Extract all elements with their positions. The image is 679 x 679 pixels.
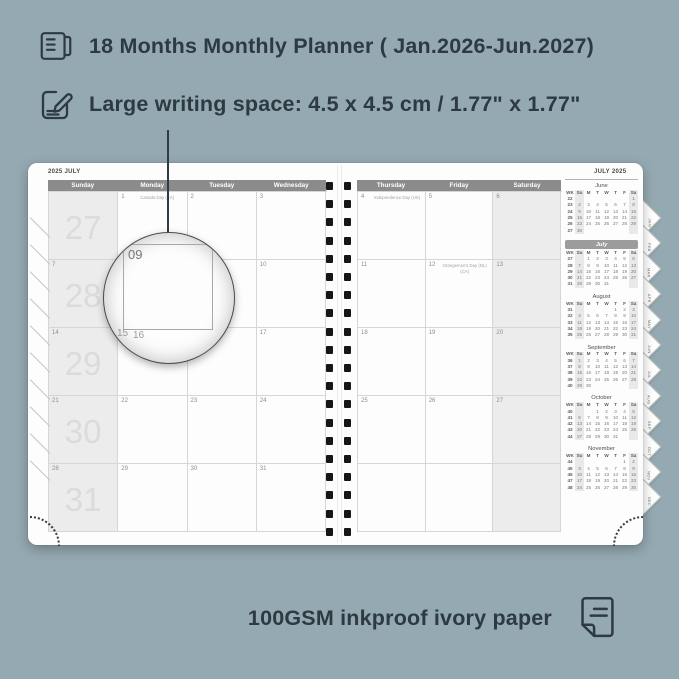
page-curl-right	[609, 512, 643, 546]
day-header: Friday	[425, 180, 493, 191]
day-cell: 20	[493, 328, 561, 396]
mini-calendar-title: September	[565, 345, 638, 351]
day-cell	[426, 464, 494, 532]
mini-calendar-title: August	[565, 294, 638, 300]
right-day-headers: ThursdayFridaySaturday	[357, 180, 561, 191]
binding-hole	[344, 200, 351, 208]
binding-hole	[326, 382, 333, 390]
binding-hole	[326, 182, 333, 190]
calendar-week-row: 4Independence Day (US)56	[358, 192, 562, 260]
mini-calendar-grid: WKSuMTWTFSa27123456287891011121329141516…	[565, 250, 638, 288]
binding-hole	[326, 309, 333, 317]
calendar-week-row: 2130222324	[49, 396, 327, 464]
magnified-day-cell: 09	[123, 244, 213, 330]
binding-hole	[344, 291, 351, 299]
subheadline-row: Large writing space: 4.5 x 4.5 cm / 1.77…	[36, 83, 580, 125]
spine-line	[341, 165, 342, 543]
day-cell: 18	[358, 328, 426, 396]
planner-spread: 2025 JULY JULY 2025 SundayMondayTuesdayW…	[28, 163, 643, 545]
calendar-week-row: 2831293031	[49, 464, 327, 532]
left-day-headers: SundayMondayTuesdayWednesday	[48, 180, 326, 191]
binding-hole	[344, 328, 351, 336]
binding-hole	[344, 182, 351, 190]
day-cell: 25	[358, 396, 426, 464]
right-page-title: JULY 2025	[594, 169, 626, 175]
magnified-next-date: 16	[133, 330, 144, 341]
binding-hole	[344, 419, 351, 427]
footer-text: 100GSM inkproof ivory paper	[248, 606, 552, 631]
mini-calendar-grid: WKSuMTWTFSa22123234567824910111213141525…	[565, 190, 638, 234]
binding-hole	[344, 437, 351, 445]
binding-hole	[344, 309, 351, 317]
binding-hole	[326, 346, 333, 354]
mini-calendar-grid: WKSuMTWTFSa44124534567894610111213141516…	[565, 453, 638, 491]
subheadline-text: Large writing space: 4.5 x 4.5 cm / 1.77…	[89, 92, 580, 117]
mini-calendar-grid: WKSuMTWTFSa40123454167891011124213141516…	[565, 402, 638, 440]
day-header: Monday	[118, 180, 188, 191]
footer-row: 100GSM inkproof ivory paper	[248, 590, 624, 646]
sunday-cell: 2130	[49, 396, 118, 464]
day-cell: 30	[188, 464, 257, 532]
binding-hole	[344, 237, 351, 245]
day-cell: 29	[118, 464, 187, 532]
mini-calendar-title: October	[565, 395, 638, 401]
binding-hole	[326, 473, 333, 481]
day-cell	[358, 464, 426, 532]
sunday-cell: 27	[49, 192, 118, 260]
binding-hole	[344, 346, 351, 354]
day-cell: 26	[426, 396, 494, 464]
day-cell: 4Independence Day (US)	[358, 192, 426, 260]
binding-hole	[344, 455, 351, 463]
binding-hole	[326, 200, 333, 208]
binding-hole	[344, 473, 351, 481]
product-graphic: 18 Months Monthly Planner ( Jan.2026-Jun…	[0, 0, 679, 679]
paper-icon	[570, 590, 624, 646]
mini-calendar-title: November	[565, 446, 638, 452]
binding-hole	[344, 364, 351, 372]
day-cell: 22	[118, 396, 187, 464]
headline-text: 18 Months Monthly Planner ( Jan.2026-Jun…	[89, 34, 594, 59]
mini-calendar-title: June	[565, 183, 638, 189]
binding-hole	[344, 218, 351, 226]
page-curl-left	[30, 512, 64, 546]
day-cell: 23	[188, 396, 257, 464]
binding-hole	[326, 273, 333, 281]
binding-hole	[326, 400, 333, 408]
calendar-week-row: 252627	[358, 396, 562, 464]
headline-row: 18 Months Monthly Planner ( Jan.2026-Jun…	[36, 27, 594, 65]
binding-hole	[326, 255, 333, 263]
binding-hole	[344, 528, 351, 536]
day-header: Thursday	[357, 180, 425, 191]
sidebar: JuneWKSuMTWTFSa2212323456782491011121314…	[565, 179, 638, 491]
day-header: Wednesday	[257, 180, 327, 191]
book-icon	[36, 27, 76, 65]
binding-hole	[344, 491, 351, 499]
mini-calendar-july: JulyWKSuMTWTFSa2712345628789101112132914…	[565, 239, 638, 288]
day-cell: 24	[257, 396, 326, 464]
calendar-week-row: 1112Orangemen's Day (NL) (CA)13	[358, 260, 562, 328]
day-cell: 10	[257, 260, 326, 328]
pencil-note-icon	[36, 83, 76, 125]
spine-line	[337, 165, 338, 543]
mini-calendar-november: NovemberWKSuMTWTFSa441245345678946101112…	[565, 445, 638, 491]
day-cell: 31	[257, 464, 326, 532]
binding-hole	[326, 364, 333, 372]
day-cell: 6	[493, 192, 561, 260]
day-cell: 3	[257, 192, 326, 260]
calendar-week-row: 181920	[358, 328, 562, 396]
binding-hole	[326, 419, 333, 427]
day-cell: 17	[257, 328, 326, 396]
binding-hole	[326, 291, 333, 299]
binding-hole	[326, 218, 333, 226]
binding-hole	[344, 273, 351, 281]
binding-hole	[326, 455, 333, 463]
day-cell: 11	[358, 260, 426, 328]
mini-calendar-grid: WKSuMTWTFSa36123456737891011121314381516…	[565, 352, 638, 390]
binding-hole	[344, 400, 351, 408]
sunday-cell: 1429	[49, 328, 118, 396]
binding-hole	[326, 237, 333, 245]
magnified-date: 09	[128, 247, 142, 262]
day-header: Saturday	[493, 180, 561, 191]
day-cell: 19	[426, 328, 494, 396]
callout-line	[167, 130, 169, 236]
mini-calendar-june: JuneWKSuMTWTFSa2212323456782491011121314…	[565, 182, 638, 234]
mini-calendar-title: July	[565, 240, 638, 249]
mini-calendar-grid: WKSuMTWTFSa31123324567891033111213141516…	[565, 301, 638, 339]
binding-hole	[344, 510, 351, 518]
calendar-week-row	[358, 464, 562, 532]
magnifier-bubble: 09 15 16	[103, 232, 235, 364]
binding-hole	[344, 255, 351, 263]
binding-hole	[326, 491, 333, 499]
binding-hole	[326, 437, 333, 445]
left-page-title: 2025 JULY	[48, 169, 81, 175]
mini-calendar-august: AugustWKSuMTWTFSa31123324567891033111213…	[565, 293, 638, 339]
day-header: Sunday	[48, 180, 118, 191]
binding-hole	[326, 328, 333, 336]
mini-calendar-september: SeptemberWKSuMTWTFSa36123456737891011121…	[565, 344, 638, 390]
day-cell: 13	[493, 260, 561, 328]
right-grid: 4Independence Day (US)561112Orangemen's …	[357, 191, 562, 532]
day-cell: 5	[426, 192, 494, 260]
day-cell: 12Orangemen's Day (NL) (CA)	[426, 260, 494, 328]
day-cell	[493, 464, 561, 532]
mini-calendar-october: OctoberWKSuMTWTFSa4012345416789101112421…	[565, 394, 638, 440]
binding-hole	[326, 510, 333, 518]
binding-hole	[326, 528, 333, 536]
day-header: Tuesday	[187, 180, 257, 191]
binding-hole	[344, 382, 351, 390]
magnified-next-date: 15	[117, 328, 128, 339]
day-cell: 27	[493, 396, 561, 464]
